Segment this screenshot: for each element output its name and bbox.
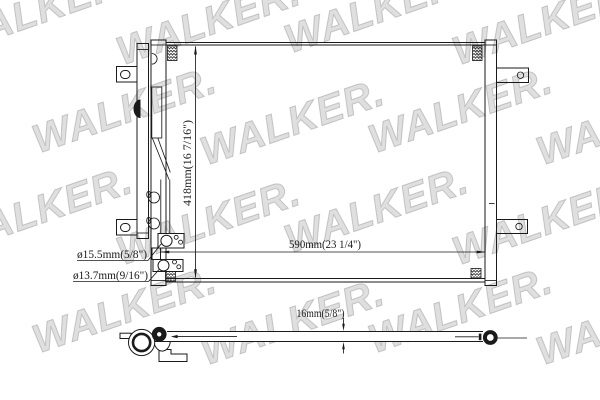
left-bracket-lower: [117, 220, 138, 236]
dimension-depth: 16mm(5/8"): [297, 306, 345, 354]
port-end-right: [485, 332, 496, 343]
right-bracket-lower: [497, 220, 528, 234]
technical-drawing: 418mm(16 7/16") 590mm(23 1/4") ø15.5mm(5…: [0, 0, 600, 400]
port-end-left: [154, 330, 164, 340]
drier-end-view: [129, 329, 155, 355]
left-tank: [147, 40, 171, 286]
dim-width-label: 590mm(23 1/4"): [289, 237, 361, 251]
right-tank: [485, 40, 497, 286]
right-bracket-upper: [497, 68, 529, 83]
condenser-technical-drawing: WALKER.WALKER.WALKER.WALKER.WALKER.WALKE…: [0, 0, 600, 400]
dimension-width: 590mm(23 1/4"): [160, 237, 485, 253]
port-small-label: ø13.7mm(9/16"): [73, 268, 148, 282]
receiver-drier: [134, 44, 149, 239]
label-port-large: ø15.5mm(5/8"): [77, 244, 162, 262]
label-port-small: ø13.7mm(9/16"): [73, 268, 160, 282]
left-bracket-upper: [117, 67, 138, 83]
pipe-fitting-small: [153, 260, 183, 272]
dim-depth-label: 16mm(5/8"): [297, 306, 345, 320]
dim-height-label: 418mm(16 7/16"): [180, 120, 194, 206]
port-large-label: ø15.5mm(5/8"): [77, 247, 147, 261]
pipe-fitting-large: [158, 234, 184, 249]
bottom-view: [120, 329, 527, 361]
